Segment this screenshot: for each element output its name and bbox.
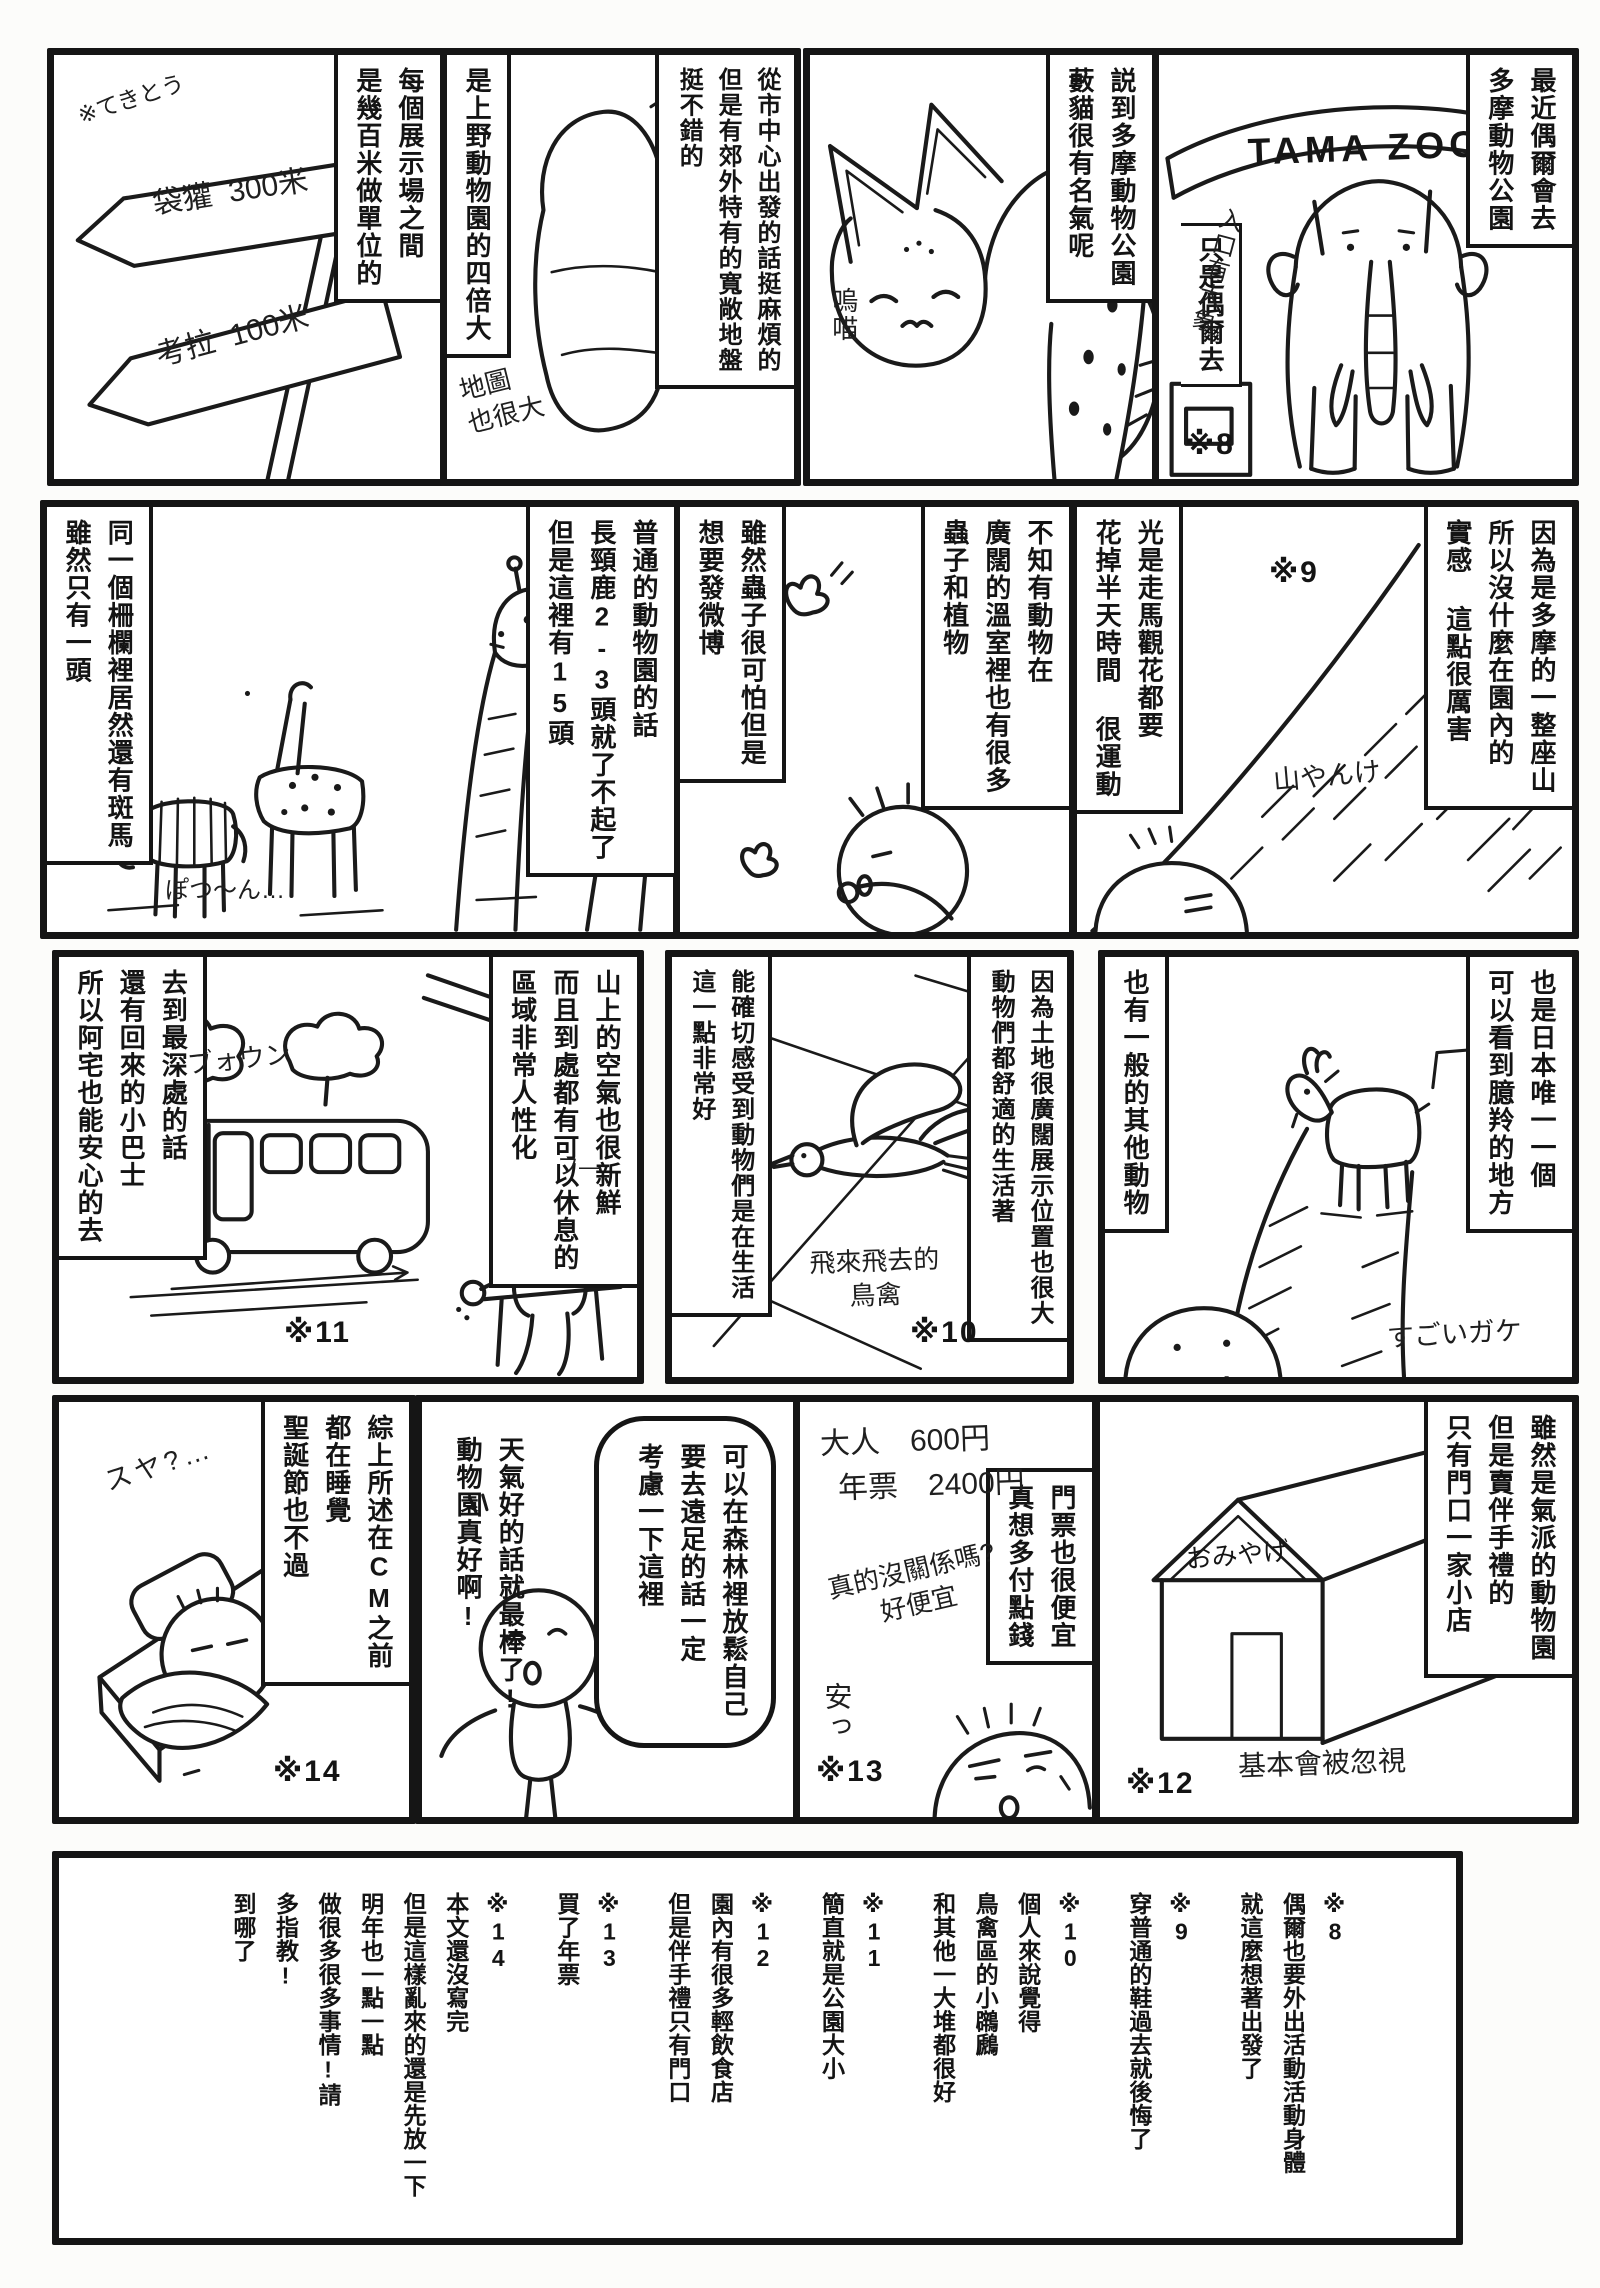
caption-excited: 天氣好的話就最棒了! 動物園真好啊! <box>438 1424 540 1727</box>
panel-map: MAP 地圖 也很大 是上野動物園的四倍大 從市中心出發的話挺麻煩的 但是有郊外… <box>440 48 801 486</box>
bubble-text: 可以在森林裡放鬆自己 要去遠足的話一定 考慮一下這裡 <box>629 1443 755 1718</box>
giraffe-handnote: ぽつ〜ん… <box>165 875 285 906</box>
goat-handnote: すごいガケ <box>1386 1313 1523 1355</box>
caption-bus-right: 山上的空氣也很新鮮 而且到處都有可以休息的 區域非常人性化 <box>489 957 637 1288</box>
panel-greenhouse: 雖然蟲子很可怕但是 想要發微博 不知有動物在 廣闊的溫室裡也有很多 蟲子和植物 <box>673 500 1076 939</box>
footnote-8: ※8 偶爾也要外出活動活動身體 就這麼想著出發了 <box>1228 1892 1356 2174</box>
panel-bird: 飛來飛去的 鳥禽 ※10 能確切感受到動物們是在生活 這一點非常好 因為土地很廣… <box>665 950 1074 1384</box>
panel-bus-stop: ブォウン フ— ※11 去到最深處的話 還有回來的小巴士 所以阿宅也能安心的去 … <box>52 950 644 1384</box>
caption-signposts: 每個展示場之間 是幾百米做單位的 <box>334 55 440 303</box>
caption-mountain-right: 因為是多摩的一整座山 所以沒什麼在園內的 實感 這點很厲害 <box>1424 507 1572 810</box>
price-annual: 年票 2400円 <box>837 1463 1025 1508</box>
caption-sleeping: 綜上所述在CM之前 都在睡覺 聖誕節也不過 <box>261 1402 409 1686</box>
comic-page: ※てきとう 袋獾 300米 考拉 100米 每個展示場之間 是幾百米做單位的 M… <box>0 0 1600 2288</box>
footnote-ref-11: ※11 <box>284 1315 351 1350</box>
panel-serval: 嗚喵 説到多摩動物公園 藪貓很有名氣呢 <box>803 48 1159 486</box>
caption-map-right: 從市中心出發的話挺麻煩的 但是有郊外特有的寬敞地盤 挺不錯的 <box>655 55 794 389</box>
footnote-ref-10: ※10 <box>910 1315 979 1350</box>
footnote-13: ※13 買了年票 <box>545 1892 630 1986</box>
caption-bird-right: 因為土地很廣闊展示位置也很大 動物們都舒適的生活著 <box>967 957 1067 1342</box>
caption-bus-left: 去到最深處的話 還有回來的小巴士 所以阿宅也能安心的去 <box>59 957 207 1260</box>
speech-bubble: 可以在森林裡放鬆自己 要去遠足的話一定 考慮一下這裡 <box>594 1416 776 1748</box>
footnote-ref-12: ※12 <box>1126 1766 1195 1801</box>
caption-shop: 雖然是氣派的動物園 但是賣伴手禮的 只有門口一家小店 <box>1424 1402 1572 1678</box>
price-adult: 大人 600円 <box>819 1419 990 1464</box>
caption-elephant-right: 最近偶爾會去 多摩動物公園 <box>1466 55 1572 248</box>
footnote-10: ※10 個人來說覺得 鳥禽區的小鸊鷉 和其他一大堆都很好 <box>921 1892 1091 2104</box>
gate-sign-text: TAMA ZOO <box>1247 122 1484 172</box>
caption-bird-left: 能確切感受到動物們是在生活 這一點非常好 <box>672 957 772 1317</box>
panel-mountain: ※9 山やんけ 光是走馬觀花都要 花掉半天時間 很運動 因為是多摩的一整座山 所… <box>1070 500 1579 939</box>
caption-mountain-left: 光是走馬觀花都要 花掉半天時間 很運動 <box>1077 507 1183 814</box>
caption-map-left: 是上野動物園的四倍大 <box>447 55 511 358</box>
caption-greenhouse-left: 雖然蟲子很可怕但是 想要發微博 <box>680 507 786 783</box>
panel-sleeping: スヤ?… ※14 綜上所述在CM之前 都在睡覺 聖誕節也不過 <box>52 1395 416 1824</box>
footnote-ref-8: ※8 <box>1185 427 1235 462</box>
panel-excited: 天氣好的話就最棒了! 動物園真好啊! 可以在森林裡放鬆自己 要去遠足的話一定 考… <box>415 1395 802 1824</box>
footnote-9: ※9 穿普通的鞋過去就後悔了 <box>1117 1892 1202 2151</box>
footnote-ref-9: ※9 <box>1269 555 1319 590</box>
footnote-ref-13: ※13 <box>816 1754 885 1789</box>
footnote-14: ※14 本文還沒寫完 但是這樣亂來的還是先放一下 明年也一點一點 做很多很多事情… <box>221 1892 519 2198</box>
shop-handnote: 基本會被忽視 <box>1237 1743 1406 1785</box>
bird-handnote: 飛來飛去的 鳥禽 <box>789 1242 961 1315</box>
panel-ticket: 大人 600円 年票 2400円 真的沒關係嗎? 好便宜 安っ ※13 門票也很… <box>793 1395 1099 1824</box>
caption-greenhouse-right: 不知有動物在 廣闊的溫室裡也有很多 蟲子和植物 <box>921 507 1069 810</box>
caption-goat-left: 也有一般的其他動物 <box>1105 957 1169 1233</box>
serval-meow: 嗚喵 <box>826 287 860 343</box>
panel-goat-cliff: すごいガケ 也有一般的其他動物 也是日本唯一一個 可以看到臆羚的地方 <box>1098 950 1579 1384</box>
caption-serval: 説到多摩動物公園 藪貓很有名氣呢 <box>1046 55 1152 303</box>
caption-giraffe-left: 同一個柵欄裡居然還有斑馬 雖然只有一頭 <box>47 507 153 865</box>
panel-footnotes: ※8 偶爾也要外出活動活動身體 就這麼想著出發了 ※9 穿普通的鞋過去就後悔了 … <box>52 1851 1463 2245</box>
footnote-11: ※11 簡直就是公園大小 <box>810 1892 895 2080</box>
panel-giraffes: ぽつ〜ん… 同一個柵欄裡居然還有斑馬 雖然只有一頭 普通的動物園的話 長頸鹿2-… <box>40 500 681 939</box>
caption-giraffe-right: 普通的動物園的話 長頸鹿2-3頭就了不起了 但是這裡有15頭 <box>526 507 674 877</box>
bus-sigh: フ— <box>557 1153 601 1182</box>
panel-shop: おみやげ 基本會被忽視 ※12 雖然是氣派的動物園 但是賣伴手禮的 只有門口一家… <box>1093 1395 1579 1824</box>
footnote-ref-14: ※14 <box>273 1754 342 1789</box>
ticket-cheap-sfx: 安っ <box>818 1682 854 1742</box>
panel-signposts: ※てきとう 袋獾 300米 考拉 100米 每個展示場之間 是幾百米做單位的 <box>47 48 447 486</box>
caption-goat-right: 也是日本唯一一個 可以看到臆羚的地方 <box>1466 957 1572 1233</box>
panel-elephant-gate: TAMA ZOO 入口有大象 只是偶爾去 ※8 最近偶爾會去 多摩動物公園 <box>1152 48 1579 486</box>
footnote-12: ※12 園內有很多輕飲食店 但是伴手禮只有門口 <box>656 1892 784 2104</box>
